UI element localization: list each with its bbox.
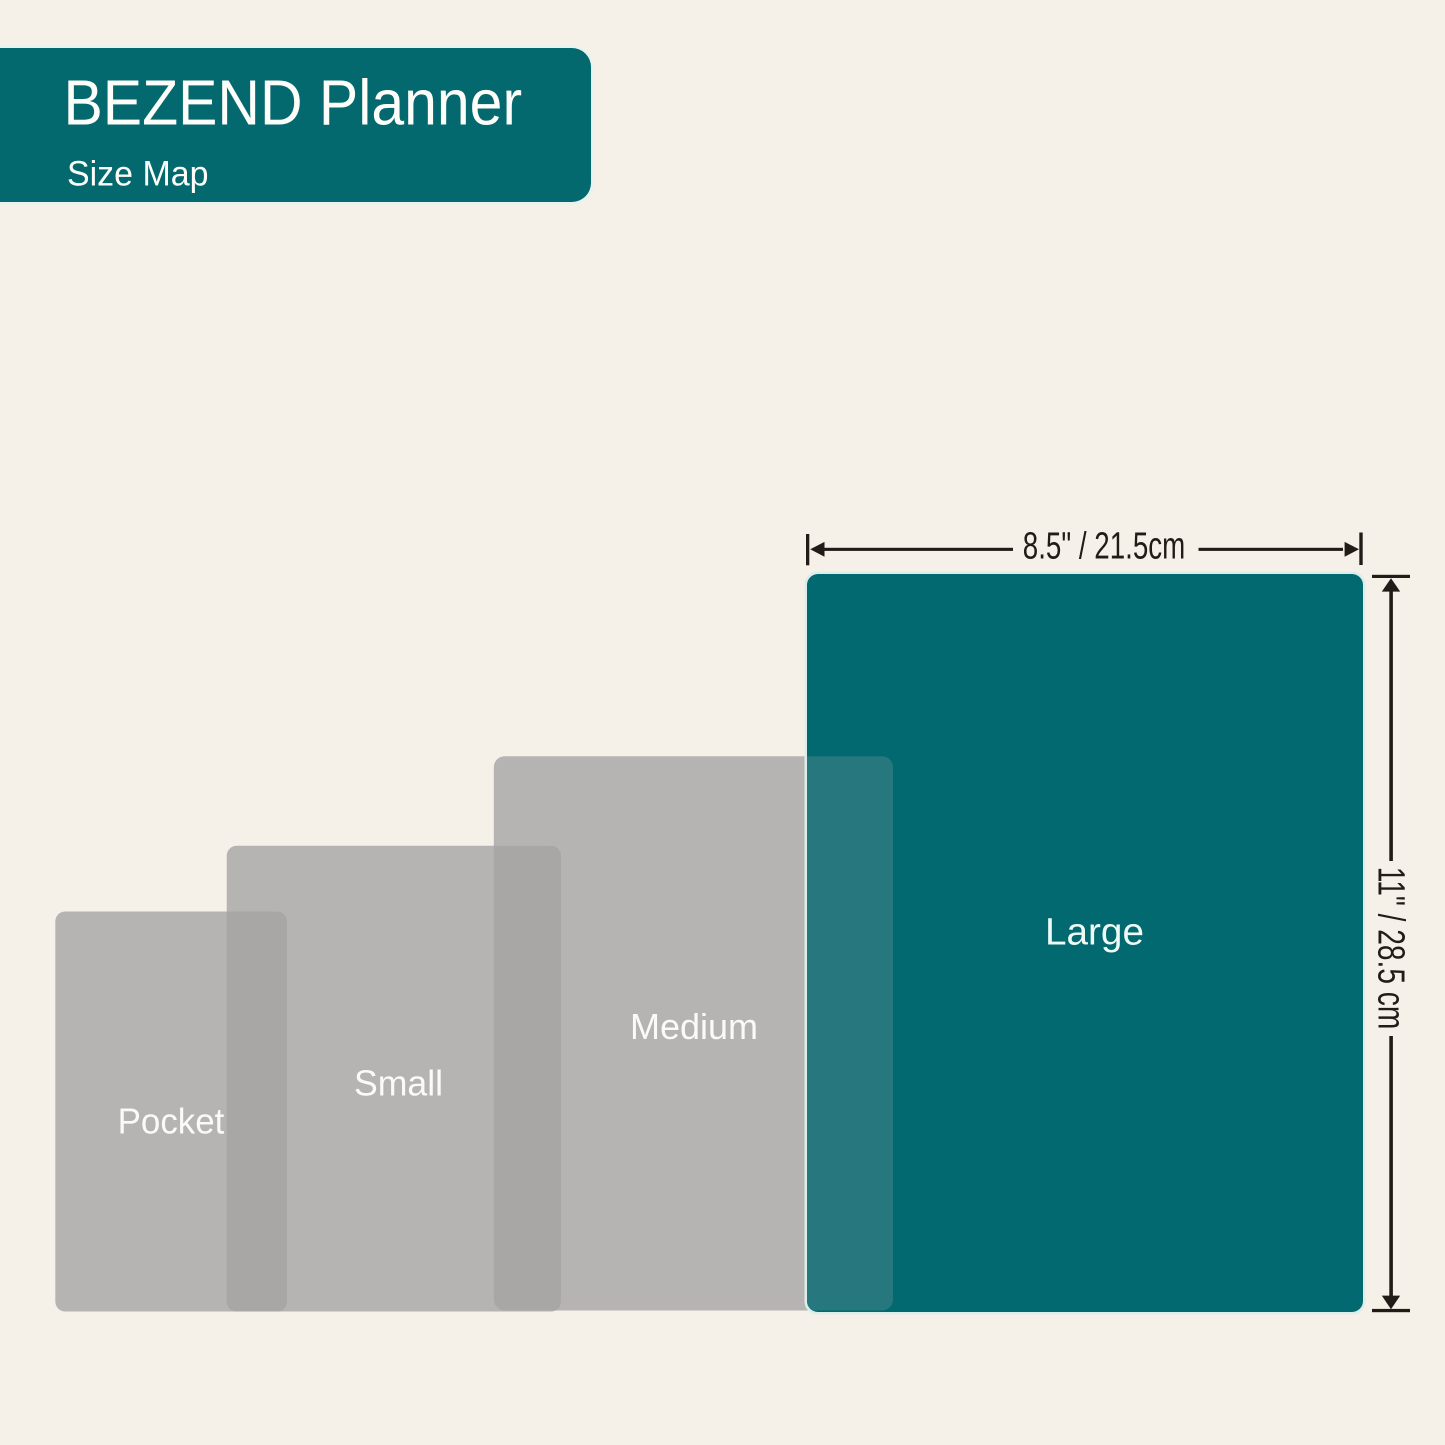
svg-text:Small: Small [354, 1063, 443, 1103]
svg-text:Large: Large [1045, 911, 1144, 954]
svg-text:Pocket: Pocket [118, 1101, 225, 1142]
svg-text:BEZEND Planner: BEZEND Planner [64, 67, 523, 139]
svg-text:Medium: Medium [630, 1006, 758, 1047]
svg-text:11" / 28.5 cm: 11" / 28.5 cm [1369, 867, 1411, 1030]
svg-text:Size Map: Size Map [67, 155, 208, 194]
svg-text:8.5" / 21.5cm: 8.5" / 21.5cm [1023, 525, 1185, 567]
